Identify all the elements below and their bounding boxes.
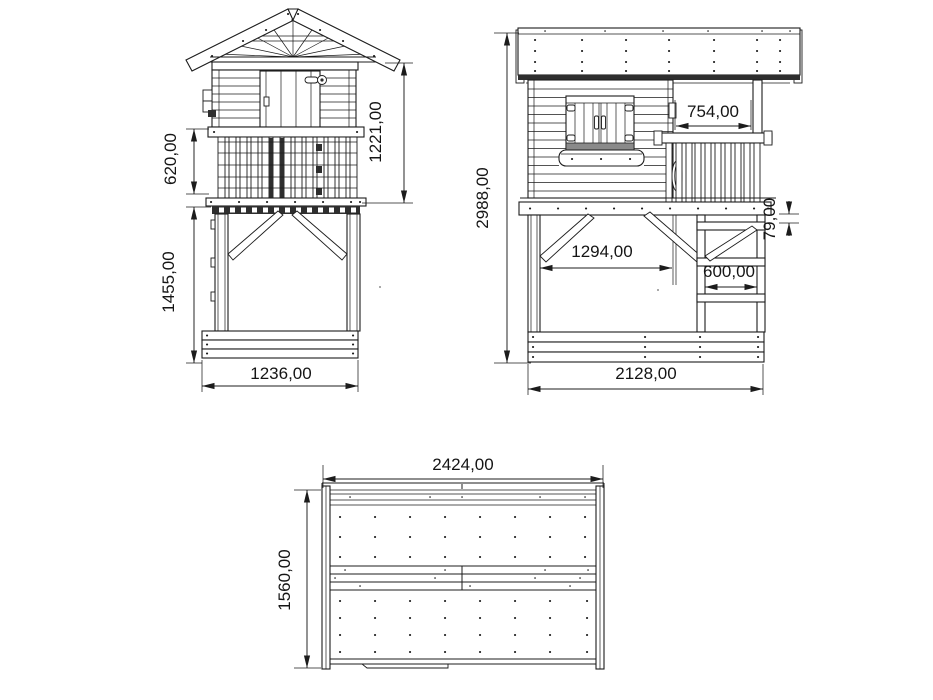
balcony-slats [666,143,760,202]
front-balustrade [206,127,366,214]
dim-side-base-width-label: 2128,00 [615,364,676,383]
cabin-front-wall [203,70,356,127]
dim-total-height-label: 2988,00 [473,167,492,228]
shutter-hinge [567,105,575,111]
gate-hinge [316,166,322,173]
diagonal-brace [292,211,347,260]
diagonal-brace [228,211,283,260]
leg-fitting [211,258,215,267]
side-elevation-view: 2988,00 754,00 79,00 1294,00 600,00 2128… [473,28,802,395]
side-sandbox [528,332,764,362]
leg-fitting [211,220,215,229]
door-latch [305,77,318,83]
dim-cabin-height-label: 1221,00 [366,101,385,162]
balcony-rail [656,133,772,143]
roof-plan-view: 2424,00 1560,00 [275,455,604,669]
wall-bracket [203,90,212,101]
front-support-legs [211,211,360,331]
ladder-rung [697,294,765,302]
dim-frame-inner-width-label: 1294,00 [571,242,632,261]
flower-box [559,150,644,166]
front-sandbox [202,331,358,358]
shutter-hinge [567,135,575,141]
door-hinge [264,97,269,106]
shutter-hinge [625,135,633,141]
balustrade-bottom-rail [206,198,366,206]
dim-step-offset-label: 79,00 [760,198,779,241]
leg-fitting [211,292,215,301]
ladder-brace [705,226,757,261]
dim-balcony-width-label: 754,00 [687,102,739,121]
wall-fitting [208,110,216,117]
roof-panels [330,490,596,668]
gate-hinge [316,188,322,195]
roof-edge-batten [362,664,448,668]
balcony-post [753,80,762,137]
shutter-handle [602,116,606,129]
gate-hinge [316,144,322,151]
front-elevation-view: 620,00 1455,00 1221,00 1236,00 [159,9,413,392]
side-roof [516,28,802,83]
dim-roof-width-label: 2424,00 [432,455,493,474]
playhouse-technical-drawing: 620,00 1455,00 1221,00 1236,00 [0,0,933,700]
window-with-shutters [566,96,634,150]
dim-balustrade-height-label: 620,00 [161,133,180,185]
drawing-canvas: 620,00 1455,00 1221,00 1236,00 [0,0,933,700]
door [260,71,327,127]
dim-front-base-width-label: 1236,00 [250,364,311,383]
dim-leg-height-label: 1455,00 [159,251,178,312]
eaves-board [212,62,358,70]
print-artifacts [379,287,659,290]
dim-ladder-width-label: 600,00 [703,262,755,281]
shutter-handle [595,116,599,129]
balustrade-slats [218,137,357,198]
balustrade-top-rail [208,127,364,137]
dim-roof-depth-label: 1560,00 [275,549,294,610]
shutter-hinge [625,105,633,111]
gable-roof [186,9,400,71]
